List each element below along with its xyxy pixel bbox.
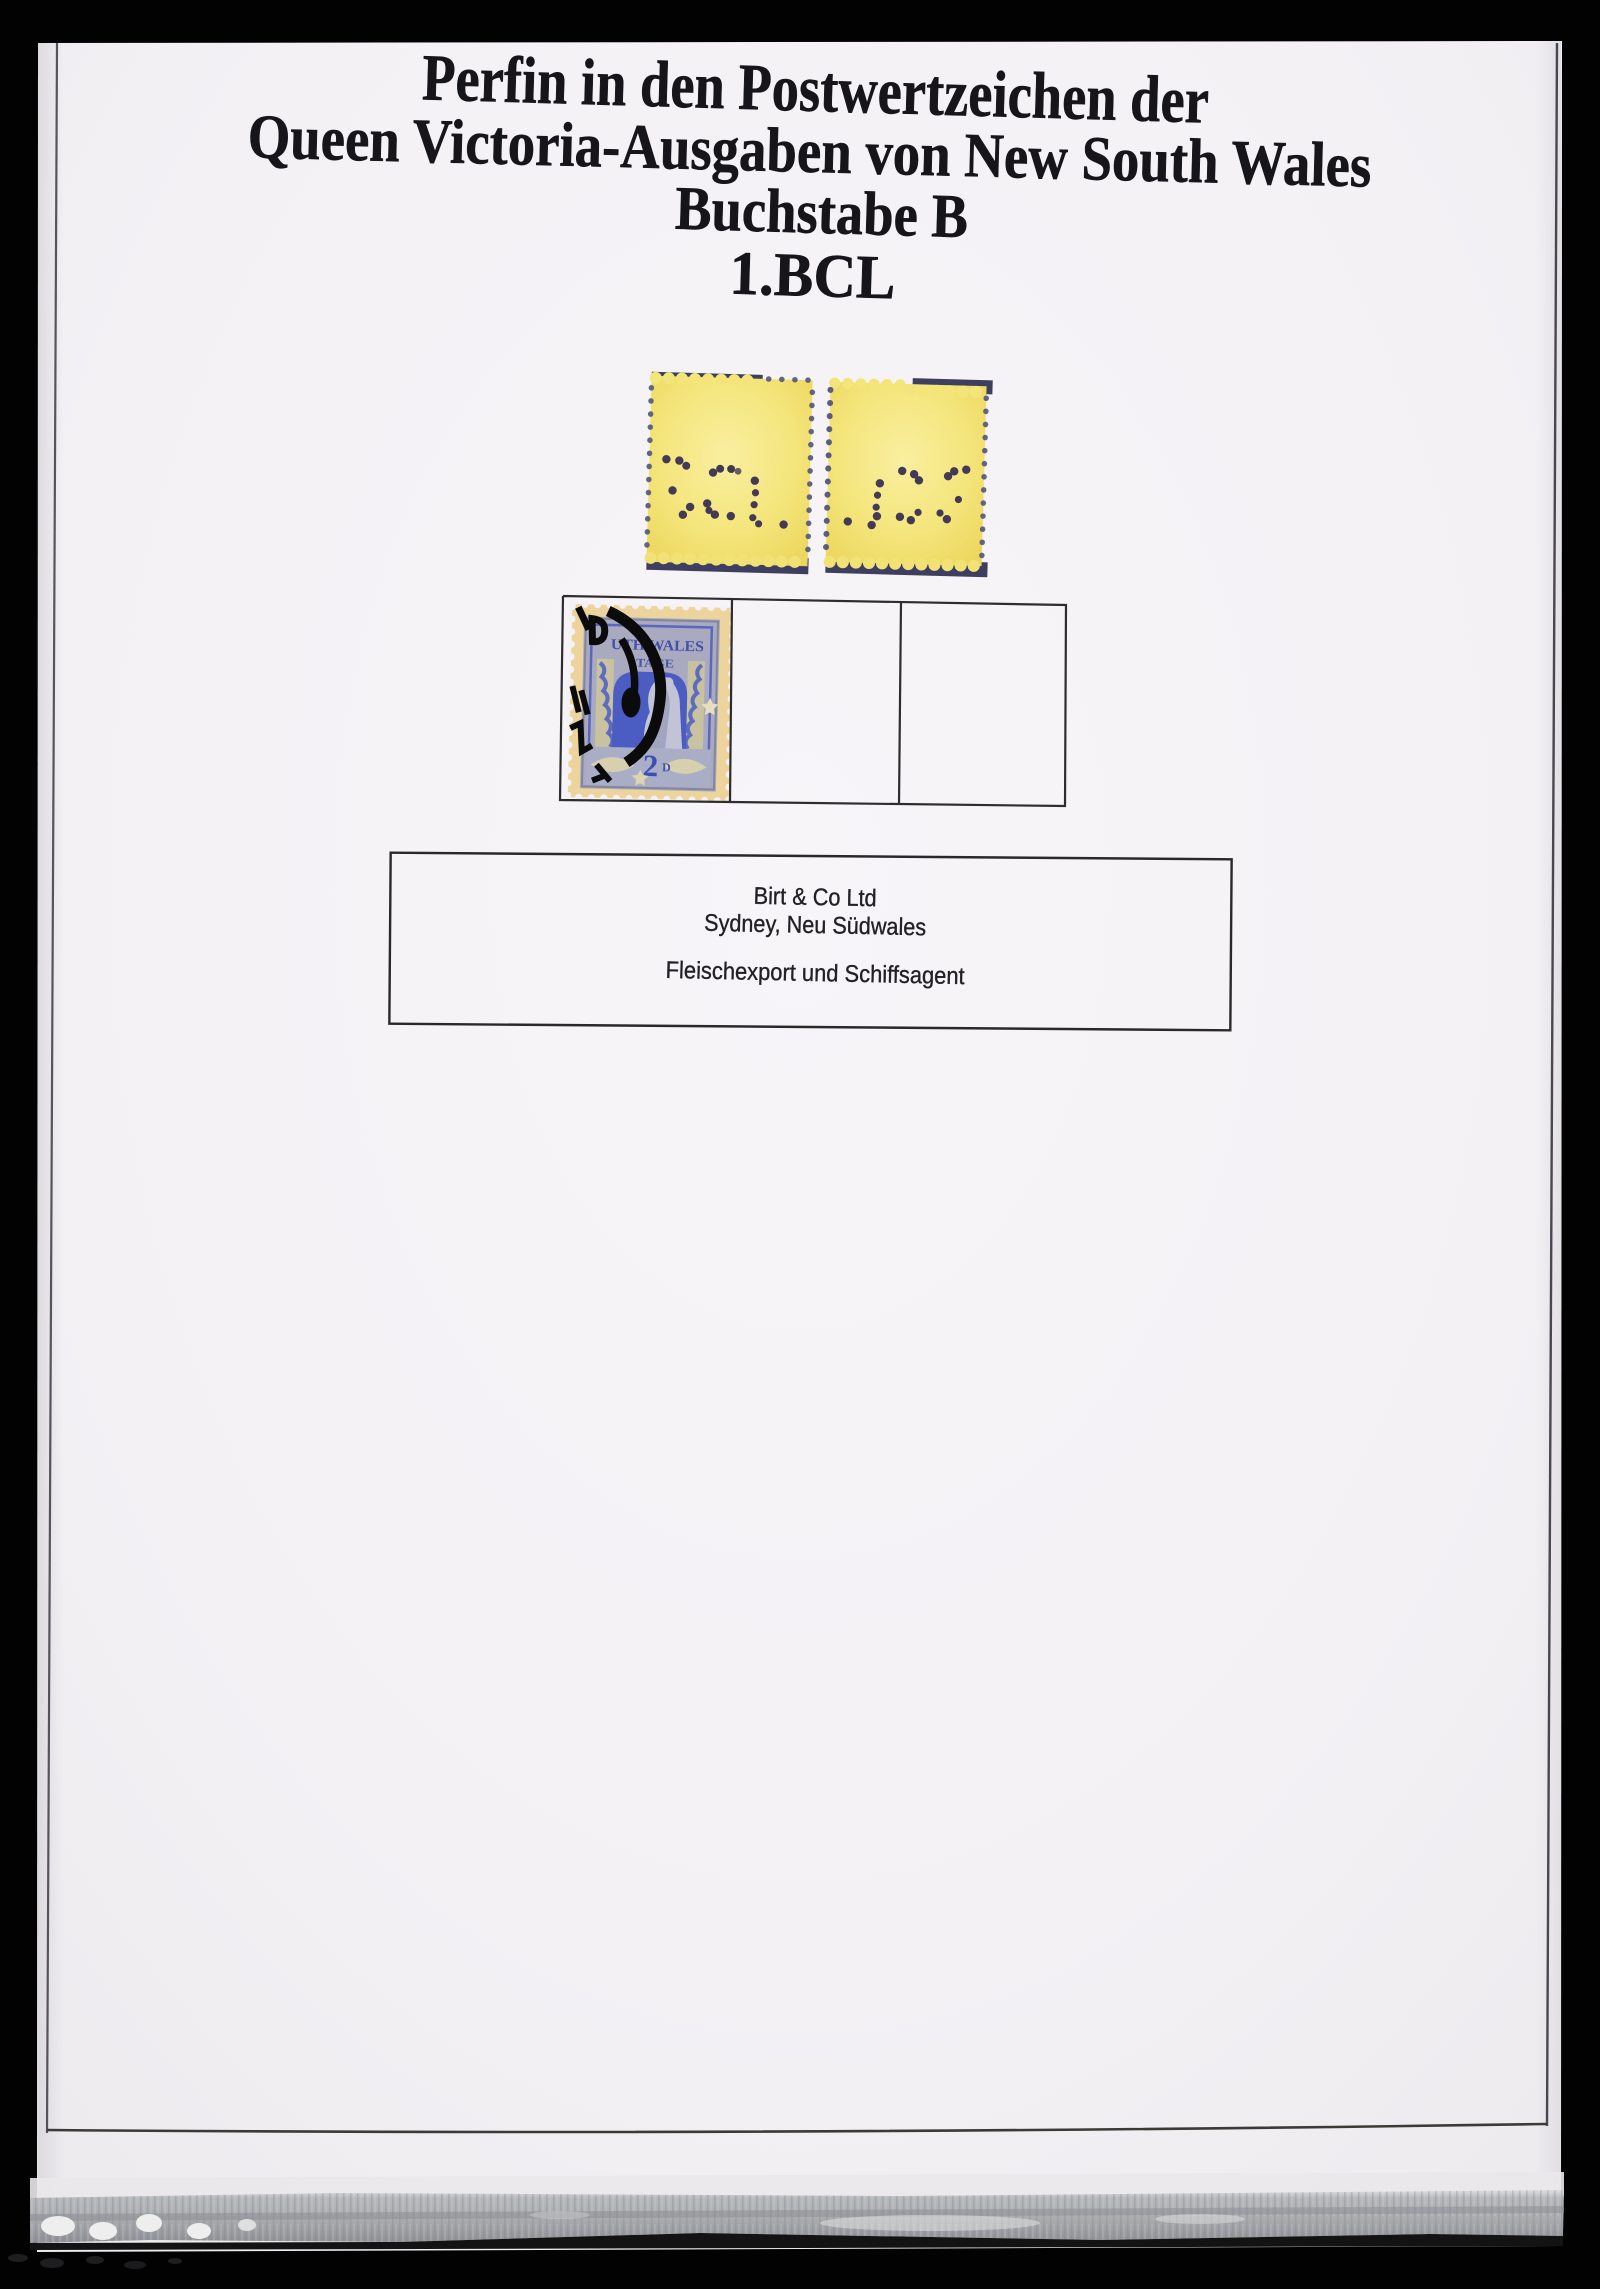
svg-text:1.BCL: 1.BCL xyxy=(729,240,897,313)
svg-text:Buchstabe B: Buchstabe B xyxy=(674,175,969,252)
svg-text:Sydney, Neu Südwales: Sydney, Neu Südwales xyxy=(704,910,927,942)
svg-text:Birt & Co Ltd: Birt & Co Ltd xyxy=(753,883,877,913)
svg-text:D: D xyxy=(662,760,671,774)
